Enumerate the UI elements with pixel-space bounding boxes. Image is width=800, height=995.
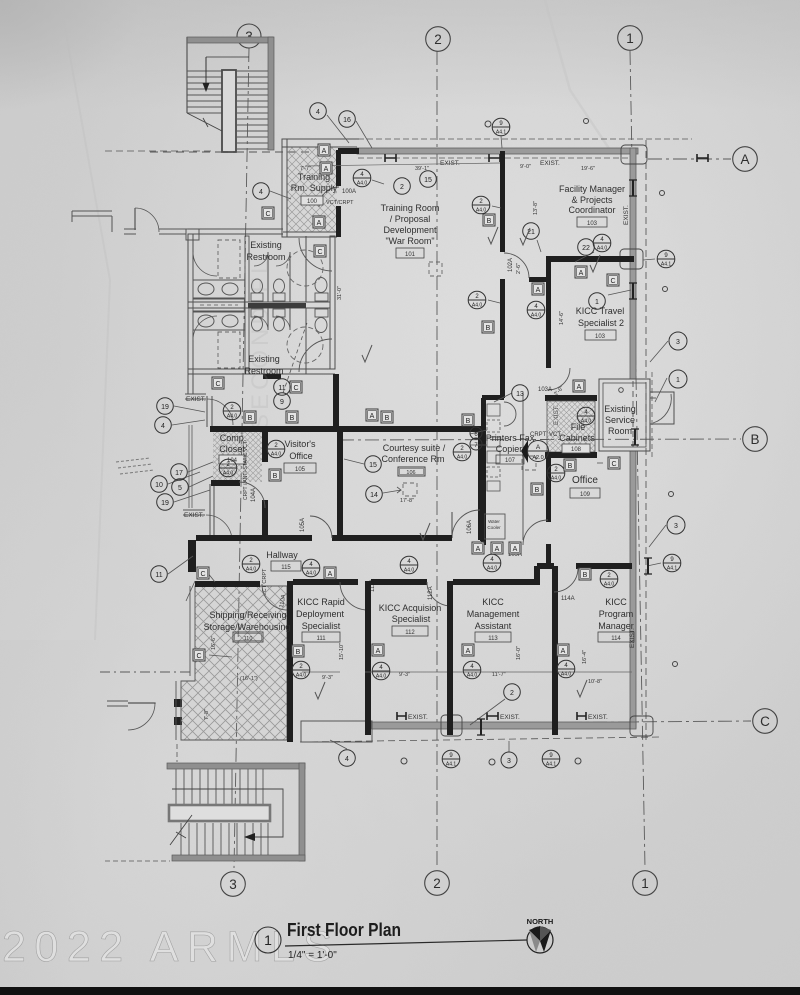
- svg-text:110: 110: [244, 636, 253, 642]
- svg-text:Copier: Copier: [496, 444, 523, 454]
- svg-text:14: 14: [370, 492, 378, 499]
- svg-text:10: 10: [155, 482, 163, 489]
- svg-text:EXIST.: EXIST.: [588, 714, 608, 721]
- svg-text:EXIST.: EXIST.: [408, 714, 428, 721]
- svg-text:Training Room: Training Room: [381, 203, 440, 213]
- svg-text:KICC: KICC: [605, 597, 627, 607]
- svg-text:CRPT / ANTI-STATIC VCT: CRPT / ANTI-STATIC VCT: [243, 441, 249, 500]
- svg-text:Specialist: Specialist: [302, 621, 341, 631]
- svg-text:EXIST.: EXIST.: [623, 205, 630, 225]
- svg-text:101: 101: [405, 252, 416, 258]
- svg-text:105: 105: [295, 467, 306, 473]
- svg-text:106: 106: [406, 470, 415, 476]
- svg-text:16: 16: [343, 117, 351, 124]
- svg-text:1: 1: [264, 932, 272, 948]
- svg-text:5: 5: [178, 485, 182, 492]
- svg-text:B: B: [750, 432, 759, 447]
- svg-text:103: 103: [595, 334, 606, 340]
- svg-text:(16'-1"): (16'-1"): [240, 676, 258, 682]
- svg-text:2: 2: [400, 184, 404, 191]
- svg-text:EXIST.: EXIST.: [540, 160, 560, 167]
- svg-text:1/4" = 1'-0": 1/4" = 1'-0": [288, 950, 337, 961]
- svg-text:1: 1: [626, 31, 634, 46]
- svg-text:EXIST.: EXIST.: [186, 396, 206, 403]
- svg-text:4: 4: [316, 109, 320, 116]
- svg-text:107: 107: [505, 458, 516, 464]
- svg-text:17: 17: [175, 470, 183, 477]
- svg-text:& Projects: & Projects: [571, 195, 613, 205]
- svg-text:Office: Office: [289, 451, 312, 461]
- svg-text:7'-8": 7'-8": [204, 709, 210, 720]
- svg-text:4: 4: [259, 189, 263, 196]
- svg-text:1: 1: [595, 299, 599, 306]
- svg-text:2: 2: [510, 690, 514, 697]
- svg-text:1: 1: [676, 377, 680, 384]
- svg-text:103: 103: [587, 221, 598, 227]
- svg-text:Development: Development: [383, 225, 437, 235]
- svg-text:KICC Travel: KICC Travel: [576, 306, 625, 316]
- svg-text:Visitor's: Visitor's: [284, 439, 316, 449]
- svg-text:Room: Room: [608, 426, 632, 436]
- svg-text:9'-3": 9'-3": [399, 672, 410, 678]
- svg-text:10'-8": 10'-8": [588, 679, 602, 685]
- svg-text:31'-0": 31'-0": [337, 286, 343, 300]
- svg-text:19: 19: [161, 500, 169, 507]
- svg-text:9'-3": 9'-3": [322, 675, 333, 681]
- svg-text:SECOND FL: SECOND FL: [247, 257, 274, 430]
- svg-text:A2.0: A2.0: [532, 455, 543, 461]
- svg-text:19: 19: [161, 404, 169, 411]
- svg-text:Facility Manager: Facility Manager: [559, 184, 625, 194]
- svg-text:Service: Service: [605, 415, 635, 425]
- svg-text:11'-7": 11'-7": [492, 672, 506, 678]
- svg-text:2: 2: [434, 32, 442, 47]
- svg-text:NORTH: NORTH: [527, 917, 554, 926]
- svg-text:2: 2: [433, 876, 441, 891]
- svg-text:Courtesy suite /: Courtesy suite /: [383, 443, 446, 453]
- svg-text:102A: 102A: [508, 258, 514, 272]
- svg-text:108: 108: [571, 447, 582, 453]
- svg-text:C: C: [760, 714, 770, 729]
- svg-text:19'-6": 19'-6": [581, 166, 595, 172]
- svg-text:VCT/CRPT: VCT/CRPT: [326, 200, 354, 206]
- svg-text:13: 13: [516, 391, 524, 398]
- svg-text:1: 1: [641, 876, 649, 891]
- svg-text:9: 9: [280, 399, 284, 406]
- svg-text:KICC Rapid: KICC Rapid: [297, 597, 345, 607]
- svg-text:Conference Rm: Conference Rm: [381, 454, 444, 464]
- svg-text:Storage/Warehousing: Storage/Warehousing: [204, 622, 291, 632]
- svg-text:Manager: Manager: [598, 621, 634, 631]
- svg-text:114: 114: [611, 636, 621, 642]
- svg-text:Closet: Closet: [219, 444, 245, 454]
- svg-text:Assistant: Assistant: [475, 621, 512, 631]
- svg-text:22: 22: [582, 245, 590, 252]
- svg-text:Specialist 2: Specialist 2: [578, 318, 624, 328]
- svg-text:111: 111: [316, 636, 326, 642]
- svg-text:3: 3: [507, 758, 511, 765]
- svg-text:100: 100: [307, 199, 318, 205]
- svg-text:16'-0": 16'-0": [516, 646, 522, 660]
- svg-text:114A: 114A: [561, 596, 575, 602]
- svg-text:Cooler: Cooler: [487, 525, 501, 530]
- svg-text:4: 4: [345, 756, 349, 763]
- svg-text:EXIST.: EXIST.: [184, 512, 204, 519]
- svg-text:106A: 106A: [467, 520, 473, 534]
- svg-text:/ Proposal: / Proposal: [390, 214, 431, 224]
- svg-text:7'-7": 7'-7": [300, 166, 311, 172]
- svg-text:KICC Acquision: KICC Acquision: [379, 603, 442, 613]
- svg-text:109: 109: [580, 492, 591, 498]
- svg-text:14'-6": 14'-6": [559, 311, 565, 325]
- svg-text:15: 15: [369, 462, 377, 469]
- svg-text:Specialist: Specialist: [392, 614, 431, 624]
- svg-text:103A: 103A: [538, 387, 552, 393]
- svg-text:4: 4: [161, 423, 165, 430]
- svg-text:3: 3: [676, 339, 680, 346]
- svg-text:Hallway: Hallway: [266, 550, 298, 560]
- svg-text:EXIST.: EXIST.: [500, 714, 520, 721]
- svg-text:First Floor Plan: First Floor Plan: [287, 920, 401, 940]
- svg-text:"War Room": "War Room": [385, 236, 434, 246]
- svg-text:15'-10": 15'-10": [339, 643, 345, 660]
- svg-text:KICC: KICC: [482, 597, 504, 607]
- svg-text:3: 3: [229, 877, 237, 892]
- svg-text:16'-6": 16'-6": [211, 636, 217, 650]
- svg-text:17'-8": 17'-8": [400, 498, 414, 504]
- svg-text:115: 115: [281, 565, 291, 571]
- svg-text:113: 113: [488, 636, 498, 642]
- svg-text:Existing: Existing: [604, 404, 636, 414]
- svg-text:100A: 100A: [342, 189, 356, 195]
- svg-text:Cabinets: Cabinets: [559, 433, 595, 443]
- svg-text:104A: 104A: [251, 488, 257, 502]
- svg-text:Rm. Supply: Rm. Supply: [291, 183, 338, 193]
- svg-text:16'-4": 16'-4": [582, 650, 588, 664]
- svg-text:Management: Management: [467, 609, 520, 619]
- svg-text:A: A: [536, 444, 541, 451]
- svg-text:VCT: VCT: [549, 432, 561, 438]
- svg-text:3: 3: [674, 523, 678, 530]
- svg-text:A: A: [740, 152, 749, 167]
- svg-text:Program: Program: [599, 609, 634, 619]
- svg-text:Coordinator: Coordinator: [568, 205, 615, 215]
- svg-text:15: 15: [424, 177, 432, 184]
- svg-text:9'-0": 9'-0": [520, 164, 531, 170]
- svg-text:2'-6": 2'-6": [516, 263, 522, 274]
- svg-text:105A: 105A: [300, 518, 306, 532]
- svg-text:Deployment: Deployment: [296, 609, 345, 619]
- svg-text:Shipping/Receiving: Shipping/Receiving: [209, 610, 286, 620]
- svg-text:13'-8": 13'-8": [533, 201, 539, 215]
- svg-text:11: 11: [278, 385, 285, 392]
- svg-text:112A: 112A: [428, 586, 434, 600]
- svg-text:11: 11: [155, 572, 162, 579]
- svg-text:Office: Office: [572, 475, 598, 486]
- svg-text:Water: Water: [488, 519, 500, 524]
- svg-text:112: 112: [405, 630, 415, 636]
- svg-text:Existing: Existing: [250, 240, 282, 250]
